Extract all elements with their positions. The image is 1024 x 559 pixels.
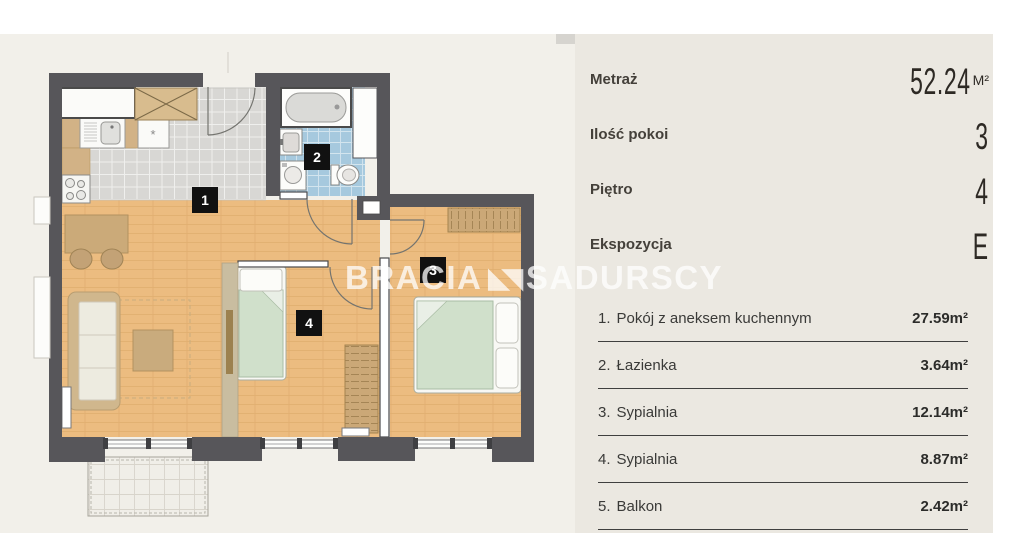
partition-wall [238,261,328,267]
brand-logo-icon: ◣◥ [488,263,516,293]
duct-column [353,88,377,158]
info-label: Ilość pokoi [590,126,668,155]
sliding-door [226,310,233,374]
room-list: 1.Pokój z aneksem kuchennym 27.59m² 2.Ła… [598,295,968,530]
room-list-item: 5.Balkon 2.42m² [598,483,968,530]
shaft [363,201,380,214]
room-list-item: 1.Pokój z aneksem kuchennym 27.59m² [598,295,968,342]
info-value: 4 [967,173,989,210]
balcony [88,457,208,516]
pillow [496,348,518,388]
svg-text:2: 2 [313,149,321,165]
info-row-metraz: Metraż 52.24M² [590,45,989,100]
brand-name-part2: SADURSCY [526,259,723,296]
room-list-item: 2.Łazienka 3.64m² [598,342,968,389]
burner [78,181,85,188]
unit-label: M² [973,72,989,88]
room-area: 12.14m² [912,404,968,421]
partition-wall [280,192,307,199]
svg-text:4: 4 [305,315,313,331]
radiator [342,428,369,436]
info-value: 3 [967,118,989,155]
room-area: 27.59m² [912,310,968,327]
room-name: Sypialnia [617,404,678,421]
room-list-item: 3.Sypialnia 12.14m² [598,389,968,436]
room-area: 8.87m² [920,451,968,468]
pillow [496,303,518,343]
svg-text:1: 1 [201,192,209,208]
stove [62,175,90,203]
info-row-pokoje: Ilość pokoi 3 [590,100,989,155]
sink-bowl [101,122,120,144]
dining-table [65,215,128,253]
info-row-pietro: Piętro 4 [590,155,989,210]
info-value: 52.24M² [873,63,989,100]
burner [66,179,75,188]
brand-name-part1: BRACIA [345,259,482,296]
tap [110,125,113,128]
chair [70,249,92,269]
room-list-item: 4.Sypialnia 8.87m² [598,436,968,483]
summary-section: Metraż 52.24M² Ilość pokoi 3 Piętro 4 Ek… [590,45,989,265]
room-area: 3.64m² [920,357,968,374]
wardrobe [345,345,378,433]
page: * [0,0,1024,559]
side-window [34,277,50,358]
info-label: Piętro [590,181,633,210]
room-area: 2.42m² [920,498,968,515]
chair [101,249,123,269]
svg-text:*: * [150,127,155,142]
room-name: Balkon [617,498,663,515]
room-name: Sypialnia [617,451,678,468]
info-label: Metraż [590,71,638,100]
coffee-table [133,330,173,371]
room-name: Łazienka [617,357,677,374]
burner [77,191,86,200]
pillow [240,269,282,291]
wardrobe [448,208,520,232]
radiator [62,387,71,428]
room-name: Pokój z aneksem kuchennym [617,310,812,327]
drain [335,105,340,110]
info-value: E [963,228,989,265]
side-window [34,197,50,224]
plan-edge-fragment [556,34,575,44]
kitchen-cabinet [60,88,135,118]
brand-watermark: BRACIA◣◥SADURSCY [345,259,723,297]
info-row-ekspozycja: Ekspozycja E [590,210,989,265]
burner [67,193,74,200]
